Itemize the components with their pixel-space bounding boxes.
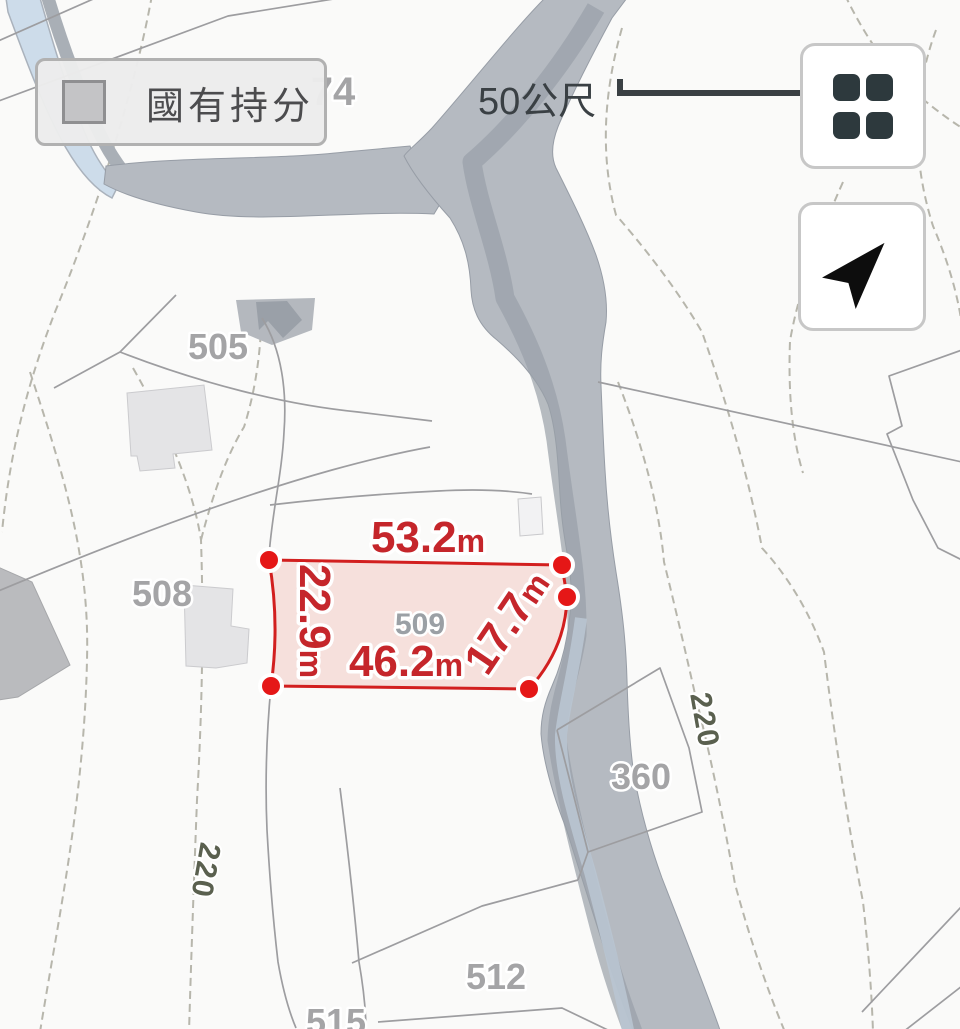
parcel-vertex-dot[interactable]: [556, 586, 578, 608]
parcel-label-512: 512: [466, 956, 526, 997]
parcel-label-505: 505: [188, 326, 248, 367]
legend: 國有持分: [35, 58, 327, 146]
scale-bar-line: [617, 90, 811, 96]
scale-bar-label: 50公尺: [478, 70, 596, 125]
navigation-arrow-icon: [807, 212, 917, 322]
parcel-label-360: 360: [611, 756, 671, 797]
grid-icon: [833, 74, 893, 139]
map-app: 74 505 508 509 512 515 360 220 220 53.2m…: [0, 0, 960, 1029]
parcel-vertex-dot[interactable]: [551, 554, 573, 576]
legend-label: 國有持分: [146, 75, 314, 130]
parcel-vertex-dot[interactable]: [260, 675, 282, 697]
legend-swatch: [62, 80, 106, 124]
locate-button[interactable]: [798, 202, 926, 331]
parcel-vertex-dot[interactable]: [258, 549, 280, 571]
scale-bar-tick: [617, 79, 623, 96]
layers-grid-button[interactable]: [800, 43, 926, 169]
building: [518, 497, 543, 536]
parcel-label-515: 515: [306, 1001, 366, 1029]
parcel-label-508: 508: [132, 573, 192, 614]
parcel-vertex-dot[interactable]: [518, 678, 540, 700]
